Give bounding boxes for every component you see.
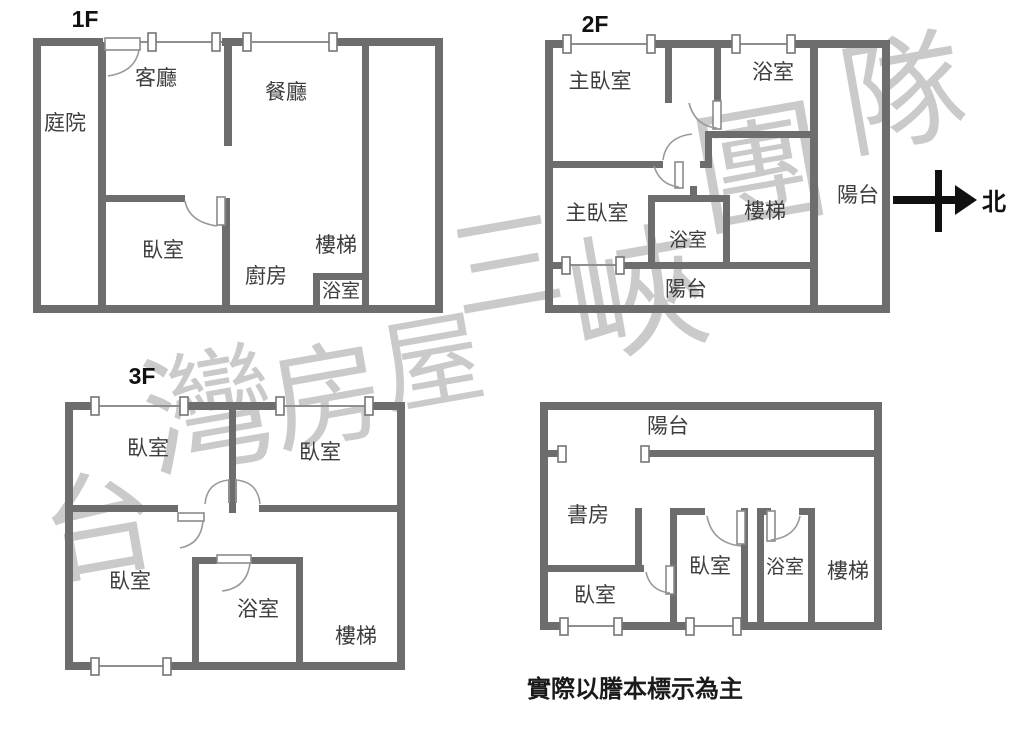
room-labels-1f: 庭院 客廳 餐廳 臥室 廚房 樓梯 浴室 bbox=[44, 67, 360, 302]
room-label-balcony-right: 陽台 bbox=[837, 184, 879, 207]
floor-plan-4f: 陽台 書房 臥室 臥室 浴室 樓梯 bbox=[540, 402, 882, 635]
room-label-kitchen: 廚房 bbox=[245, 265, 287, 288]
floor-label-3f: 3F bbox=[129, 363, 156, 389]
room-labels-4f: 陽台 書房 臥室 臥室 浴室 樓梯 bbox=[567, 415, 869, 607]
room-label-bedroom-center: 臥室 bbox=[689, 555, 731, 578]
room-label-stairs: 樓梯 bbox=[827, 560, 869, 583]
room-label-bathroom-center: 浴室 bbox=[669, 229, 707, 251]
north-compass: 北 bbox=[893, 170, 1006, 232]
doors-3f bbox=[178, 479, 260, 591]
room-label-bedroom-left: 臥室 bbox=[574, 584, 616, 607]
room-label-stairs: 樓梯 bbox=[744, 200, 786, 223]
north-arrow-icon bbox=[955, 185, 977, 215]
room-label-stairs: 樓梯 bbox=[315, 234, 357, 257]
room-label-master-bedroom-bottom: 主臥室 bbox=[566, 202, 629, 225]
floor-plan-1f: 1F 庭院 bbox=[33, 6, 443, 313]
floor-plan-drawing: 台 灣 房 屋 三 峽 團 隊 1F bbox=[0, 0, 1024, 738]
room-label-master-bedroom-top: 主臥室 bbox=[569, 70, 632, 93]
room-label-bedroom: 臥室 bbox=[142, 239, 184, 262]
north-label: 北 bbox=[982, 189, 1006, 216]
room-label-study: 書房 bbox=[567, 504, 609, 527]
floor-plan-sheet: 台 灣 房 屋 三 峽 團 隊 1F bbox=[0, 0, 1024, 738]
room-label-dining-room: 餐廳 bbox=[265, 81, 307, 104]
room-label-bedroom-top-right: 臥室 bbox=[299, 441, 341, 464]
room-label-bedroom-top-left: 臥室 bbox=[127, 437, 169, 460]
room-label-bathroom-top: 浴室 bbox=[752, 61, 794, 84]
floor-label-1f: 1F bbox=[72, 6, 99, 32]
floor-label-2f: 2F bbox=[582, 11, 609, 37]
compass-cross-horizontal bbox=[893, 196, 957, 204]
room-label-living-room: 客廳 bbox=[135, 67, 177, 90]
room-label-courtyard: 庭院 bbox=[44, 112, 86, 135]
room-label-stairs: 樓梯 bbox=[335, 625, 377, 648]
room-label-balcony-bottom: 陽台 bbox=[665, 278, 707, 301]
room-label-bathroom: 浴室 bbox=[766, 556, 804, 578]
disclaimer-note: 實際以謄本標示為主 bbox=[527, 675, 743, 703]
room-label-bathroom: 浴室 bbox=[237, 598, 279, 621]
room-label-bedroom-bottom-left: 臥室 bbox=[109, 570, 151, 593]
doors-4f bbox=[646, 511, 800, 594]
room-label-balcony: 陽台 bbox=[647, 415, 689, 438]
walls-1f bbox=[33, 38, 443, 313]
room-label-bathroom: 浴室 bbox=[322, 280, 360, 302]
